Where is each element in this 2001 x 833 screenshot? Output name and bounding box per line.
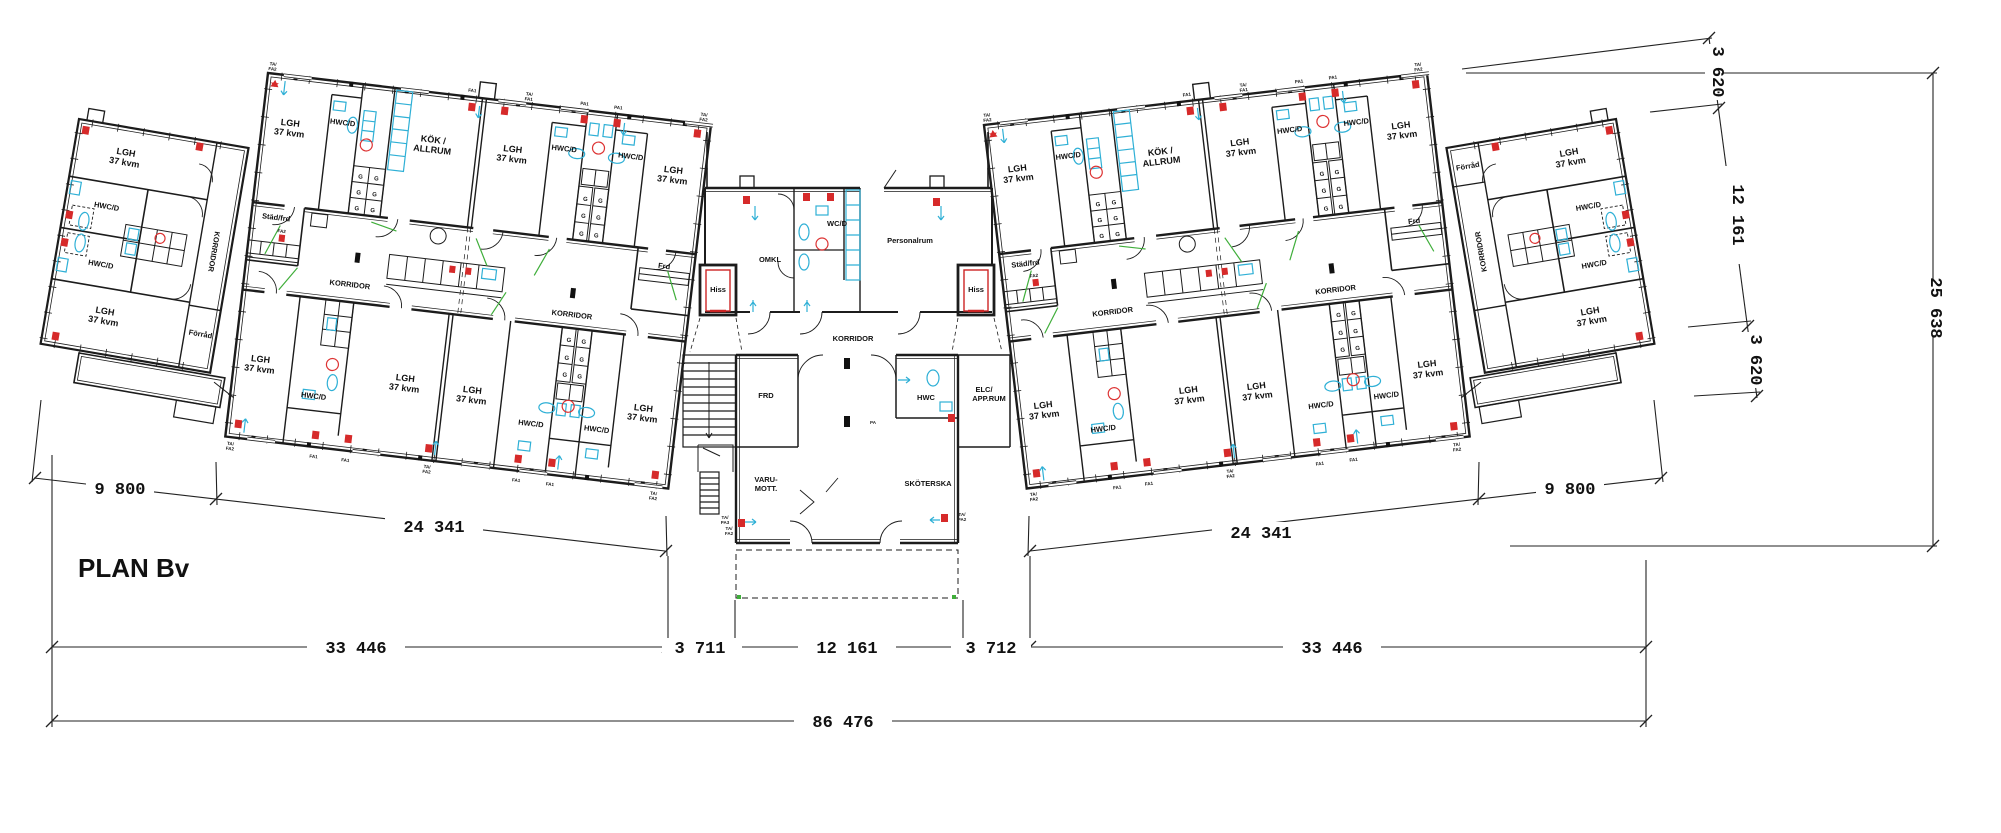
svg-text:WC/D: WC/D (827, 219, 848, 228)
svg-text:9 800: 9 800 (94, 481, 145, 500)
svg-text:3 620: 3 620 (1745, 334, 1764, 385)
svg-text:KORRIDOR: KORRIDOR (833, 334, 874, 343)
svg-text:3 620: 3 620 (1707, 46, 1726, 97)
svg-text:33 446: 33 446 (1301, 640, 1362, 659)
svg-text:VARU-: VARU- (754, 475, 778, 484)
svg-text:25 638: 25 638 (1925, 277, 1944, 338)
svg-text:MOTT.: MOTT. (755, 484, 778, 493)
svg-text:12 161: 12 161 (816, 640, 877, 659)
svg-text:3 711: 3 711 (674, 640, 725, 659)
svg-text:Frd: Frd (1408, 216, 1421, 226)
svg-text:FA2: FA2 (725, 531, 734, 536)
svg-text:24 341: 24 341 (1230, 525, 1291, 544)
svg-text:HWC: HWC (917, 393, 935, 402)
svg-text:3 712: 3 712 (965, 640, 1016, 659)
svg-text:86 476: 86 476 (812, 714, 873, 733)
svg-text:9 800: 9 800 (1544, 481, 1595, 500)
svg-text:APP.RUM: APP.RUM (972, 394, 1006, 403)
svg-text:12 161: 12 161 (1727, 184, 1746, 245)
svg-text:Frd: Frd (658, 261, 671, 271)
svg-text:Personalrum: Personalrum (887, 236, 933, 245)
svg-text:33 446: 33 446 (325, 640, 386, 659)
svg-text:SKÖTERSKA: SKÖTERSKA (904, 479, 952, 488)
svg-text:ELC/: ELC/ (975, 385, 993, 394)
svg-text:24 341: 24 341 (403, 519, 464, 538)
svg-text:OMKL: OMKL (759, 255, 781, 264)
svg-text:PA3: PA3 (721, 520, 730, 525)
svg-text:FRD: FRD (758, 391, 774, 400)
svg-text:PLAN Bv: PLAN Bv (78, 553, 190, 583)
svg-text:Hiss: Hiss (710, 285, 726, 294)
svg-text:PA2: PA2 (958, 517, 967, 522)
svg-text:PA: PA (870, 420, 877, 425)
svg-text:Hiss: Hiss (968, 285, 984, 294)
